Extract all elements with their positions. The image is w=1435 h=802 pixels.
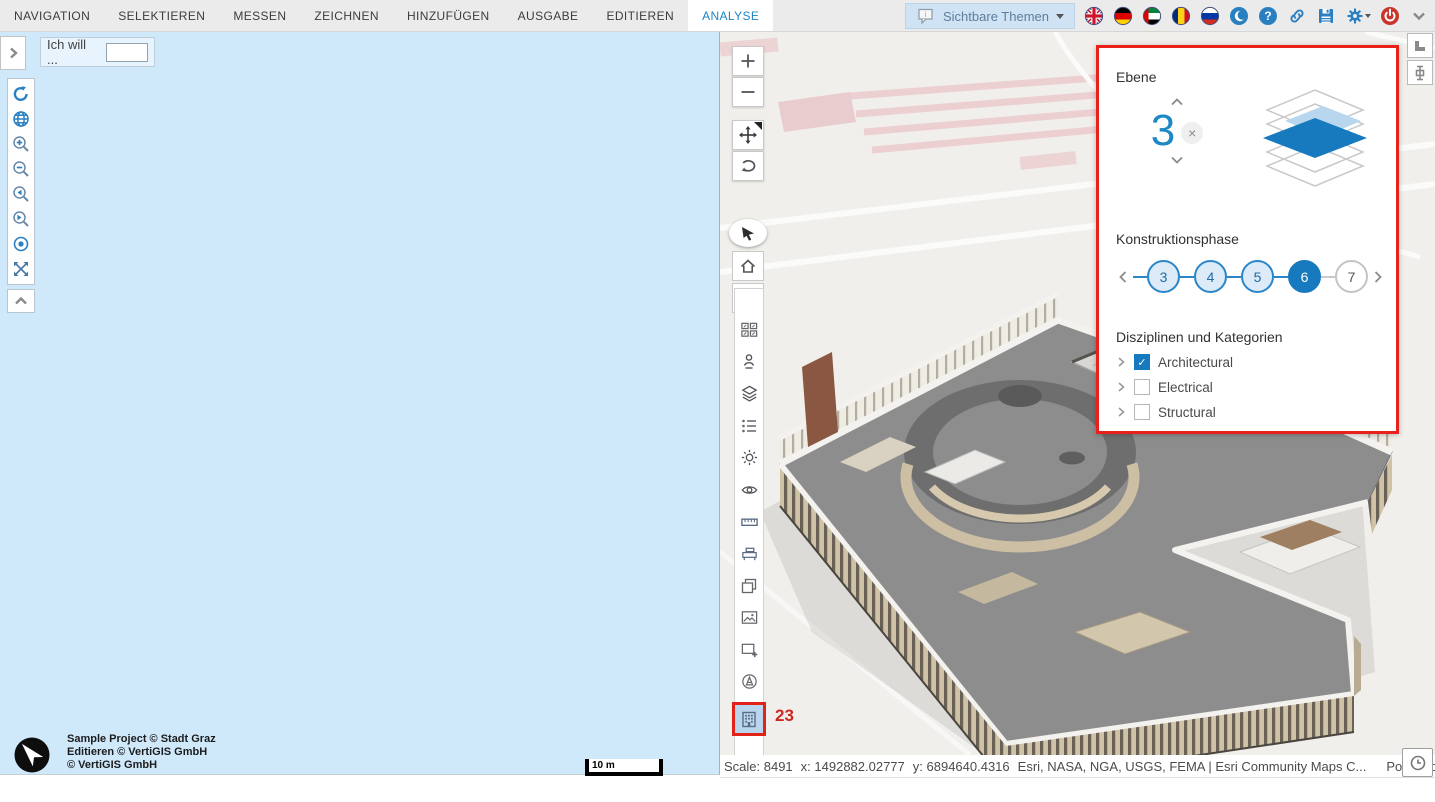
flag-romanian-button[interactable]: [1171, 6, 1191, 26]
l-shape-icon: [1412, 38, 1428, 54]
discipline-row-electrical: Electrical: [1116, 379, 1233, 395]
corner-view-button[interactable]: [1407, 33, 1433, 58]
level-section-title: Ebene: [1116, 69, 1156, 85]
phase-step-6[interactable]: 6: [1288, 260, 1321, 293]
share-link-icon[interactable]: [1287, 6, 1307, 26]
minus-icon: [739, 83, 757, 101]
tab-ausgabe[interactable]: AUSGABE: [504, 0, 593, 31]
tab-label: ANALYSE: [702, 9, 759, 23]
tab-label: SELEKTIEREN: [118, 9, 205, 23]
collapse-toolbar-chevron-icon[interactable]: [1409, 6, 1429, 26]
discipline-label: Architectural: [1158, 355, 1233, 370]
annotation-number: 23: [775, 706, 794, 726]
add-view-button[interactable]: [738, 639, 760, 660]
rotate-icon: [738, 156, 758, 176]
layers-button[interactable]: [738, 383, 760, 404]
bim-layer-panel: Ebene 3 ×: [1096, 45, 1399, 434]
compass-orientation-button[interactable]: [738, 671, 760, 692]
zoom-previous-button[interactable]: [9, 183, 33, 205]
discipline-label: Structural: [1158, 405, 1216, 420]
i-want-to-widget: Ich will ...: [40, 37, 155, 67]
checkbox-architectural[interactable]: ✓: [1134, 354, 1150, 370]
help-icon[interactable]: ?: [1258, 6, 1278, 26]
legend-list-button[interactable]: [738, 415, 760, 436]
status-x-coordinate: x: 1492882.02777: [801, 759, 905, 774]
zoom-next-button[interactable]: [9, 208, 33, 230]
chevron-left-icon: [1117, 269, 1129, 285]
submenu-corner-icon: [754, 122, 762, 130]
select-tool-button[interactable]: [729, 219, 767, 247]
map-3d-view[interactable]: 23 Ebene 3 ×: [720, 32, 1435, 755]
visibility-eye-button[interactable]: [738, 479, 760, 500]
navigation-toolbar-group: [7, 78, 35, 285]
home-view-button[interactable]: [732, 251, 764, 281]
i-want-to-label: Ich will ...: [47, 37, 100, 67]
flag-arabic-button[interactable]: [1142, 6, 1162, 26]
tab-analyse[interactable]: ANALYSE: [688, 0, 773, 31]
center-map-button[interactable]: [9, 233, 33, 255]
tab-editieren[interactable]: EDITIEREN: [592, 0, 688, 31]
toolbar-collapse-button[interactable]: [7, 289, 35, 313]
zoom-in-button[interactable]: [9, 133, 33, 155]
copyright-line: © VertiGIS GmbH: [67, 759, 216, 772]
north-arrow-compass: [13, 736, 51, 774]
time-slider-button[interactable]: [1402, 748, 1433, 777]
tab-label: EDITIEREN: [606, 9, 674, 23]
level-value: 3: [1151, 108, 1175, 154]
tab-label: ZEICHNEN: [314, 9, 379, 23]
plumb-axis-icon: [1411, 64, 1429, 82]
chevron-right-icon: [1372, 269, 1384, 285]
cursor-icon: [739, 224, 757, 242]
chevron-up-icon: [13, 294, 29, 308]
map-copyright: Sample Project © Stadt Graz Editieren © …: [67, 733, 216, 772]
viewports-button[interactable]: [738, 319, 760, 340]
chevron-down-icon: [1056, 14, 1064, 19]
bim-building-tool-button[interactable]: [732, 702, 766, 736]
tab-label: HINZUFÜGEN: [407, 9, 490, 23]
copyright-line: Sample Project © Stadt Graz: [67, 733, 216, 746]
discipline-row-architectural: ✓ Architectural: [1116, 354, 1233, 370]
plus-icon: [739, 52, 757, 70]
flag-russian-button[interactable]: [1200, 6, 1220, 26]
image-export-button[interactable]: [738, 607, 760, 628]
disciplines-list: ✓ Architectural Electrical Structural: [1116, 354, 1233, 420]
level-clear-button[interactable]: ×: [1181, 122, 1203, 144]
discipline-label: Electrical: [1158, 380, 1213, 395]
status-scale: Scale: 8491: [724, 759, 793, 774]
phase-next-button[interactable]: [1368, 269, 1388, 285]
tab-hinzufuegen[interactable]: HINZUFÜGEN: [393, 0, 504, 31]
layer-stack-icon: [1251, 88, 1379, 193]
navigation-toolbar: [7, 78, 35, 313]
building-icon: [739, 709, 759, 729]
logout-power-icon[interactable]: [1380, 6, 1400, 26]
duplicate-window-button[interactable]: [738, 575, 760, 596]
clock-icon: [1409, 754, 1427, 772]
tab-label: NAVIGATION: [14, 9, 90, 23]
zoom-full-extent-button[interactable]: [9, 258, 33, 280]
save-icon[interactable]: [1316, 6, 1336, 26]
expand-panel-button[interactable]: [0, 36, 26, 70]
construction-phase-slider: 3 4 5 6 7: [1109, 260, 1392, 293]
tab-selektieren[interactable]: SELEKTIEREN: [104, 0, 219, 31]
svg-text:?: ?: [1264, 9, 1271, 23]
home-icon: [738, 256, 758, 276]
top-menu-bar: NAVIGATION SELEKTIEREN MESSEN ZEICHNEN H…: [0, 0, 1435, 32]
map-zoom-in-button[interactable]: [732, 46, 764, 76]
settings-gear-icon[interactable]: [1345, 6, 1371, 26]
phase-step-7[interactable]: 7: [1335, 260, 1368, 293]
svg-text:i: i: [925, 10, 927, 19]
rotate-reset-button[interactable]: [9, 83, 33, 105]
checkbox-structural[interactable]: [1134, 404, 1150, 420]
street-view-person-button[interactable]: [738, 351, 760, 372]
status-attribution: Esri, NASA, NGA, USGS, FEMA | Esri Commu…: [1018, 759, 1367, 774]
disciplines-section-title: Disziplinen und Kategorien: [1116, 329, 1283, 345]
info-bubble-icon: i: [916, 6, 936, 26]
expand-chevron-icon[interactable]: [1116, 356, 1126, 368]
scale-bar-label: 10 m: [592, 760, 615, 771]
vertical-axis-button[interactable]: [1407, 60, 1433, 85]
level-stepper: 3 ×: [1147, 96, 1207, 166]
expand-chevron-icon[interactable]: [1116, 406, 1126, 418]
map-status-bar: Scale: 8491 x: 1492882.02777 y: 6894640.…: [720, 755, 1435, 778]
map-zoom-out-button[interactable]: [732, 77, 764, 107]
tab-label: MESSEN: [233, 9, 286, 23]
night-mode-icon[interactable]: [1229, 6, 1249, 26]
map-tools-strip: [734, 288, 764, 755]
status-y-coordinate: y: 6894640.4316: [913, 759, 1010, 774]
globe-full-extent-button[interactable]: [9, 108, 33, 130]
phase-step-4[interactable]: 4: [1194, 260, 1227, 293]
visible-themes-label: Sichtbare Themen: [943, 9, 1049, 24]
tab-zeichnen[interactable]: ZEICHNEN: [300, 0, 393, 31]
tab-navigation[interactable]: NAVIGATION: [0, 0, 104, 31]
ruler-measure-button[interactable]: [738, 511, 760, 532]
phase-section-title: Konstruktionsphase: [1116, 231, 1239, 247]
copyright-line: Editieren © VertiGIS GmbH: [67, 746, 216, 759]
phase-step-5[interactable]: 5: [1241, 260, 1274, 293]
phase-previous-button[interactable]: [1113, 269, 1133, 285]
tab-messen[interactable]: MESSEN: [219, 0, 300, 31]
i-want-to-input[interactable]: [106, 43, 148, 62]
expand-chevron-icon[interactable]: [1116, 381, 1126, 393]
visible-themes-button[interactable]: i Sichtbare Themen: [905, 3, 1075, 29]
flag-english-button[interactable]: [1084, 6, 1104, 26]
chevron-right-icon: [5, 45, 21, 61]
section-box-button[interactable]: [738, 543, 760, 564]
pan-tool-button[interactable]: [732, 120, 764, 150]
zoom-out-button[interactable]: [9, 158, 33, 180]
app-window: NAVIGATION SELEKTIEREN MESSEN ZEICHNEN H…: [0, 0, 1435, 802]
chevron-down-icon: [1169, 154, 1185, 166]
rotate-view-button[interactable]: [732, 151, 764, 181]
left-workspace-panel: Ich will ...: [0, 32, 720, 775]
ribbon-tabs: NAVIGATION SELEKTIEREN MESSEN ZEICHNEN H…: [0, 0, 773, 31]
level-down-button[interactable]: [1165, 154, 1189, 166]
phase-step-3[interactable]: 3: [1147, 260, 1180, 293]
tab-label: AUSGABE: [518, 9, 579, 23]
topbar-actions: i Sichtbare Themen: [905, 0, 1429, 32]
flag-german-button[interactable]: [1113, 6, 1133, 26]
checkbox-electrical[interactable]: [1134, 379, 1150, 395]
daylight-sun-button[interactable]: [738, 447, 760, 468]
discipline-row-structural: Structural: [1116, 404, 1233, 420]
scale-bar: 10 m: [585, 759, 663, 776]
